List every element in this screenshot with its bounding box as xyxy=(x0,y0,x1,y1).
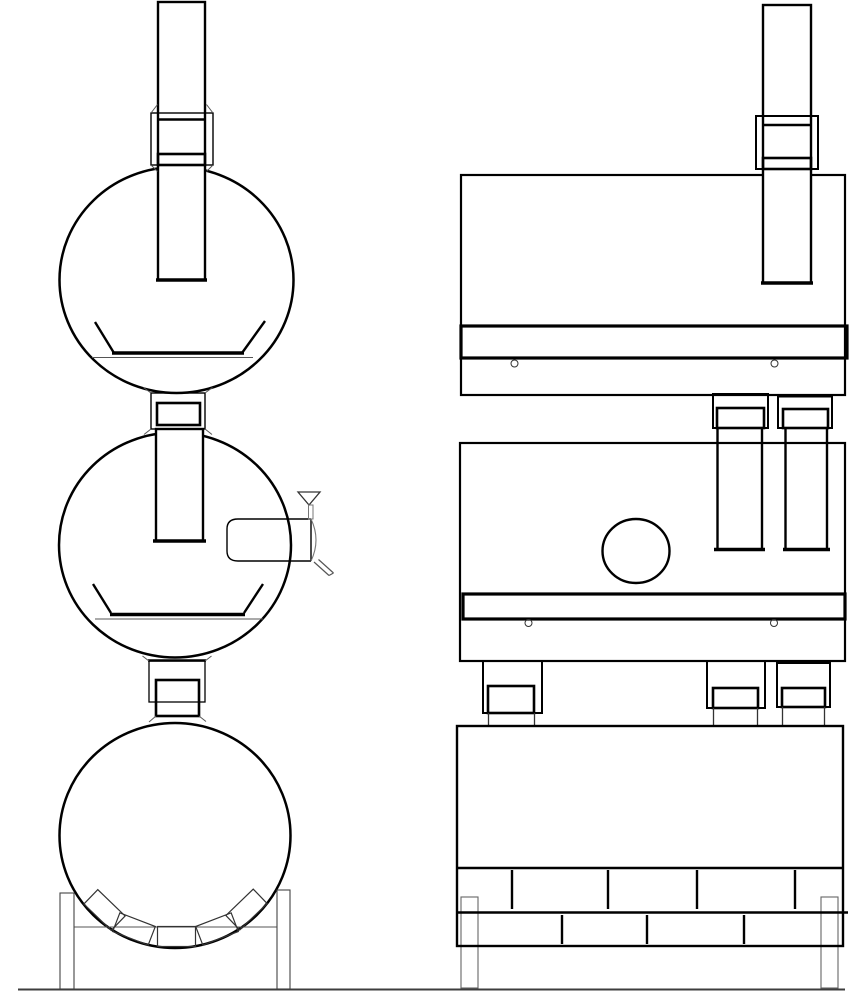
upper-connector-chamfer-br xyxy=(205,429,212,435)
tray-middle-right-slant xyxy=(244,584,263,613)
upper-connector-chamfer-bl xyxy=(144,429,151,435)
lower-leg-middle-collar-outer xyxy=(707,661,765,708)
drain-stub-end-cap xyxy=(329,573,334,576)
upper-casing-hole-left xyxy=(511,360,518,367)
saddle-pad-right-2 xyxy=(226,889,267,930)
top-pipe xyxy=(158,2,205,280)
base-post-left xyxy=(461,897,478,988)
top-flange-chamfer-tl xyxy=(151,105,158,114)
upper-connector-flange-inner xyxy=(157,403,200,425)
saddle-pad-left-2 xyxy=(84,890,125,931)
tray-top-right-slant xyxy=(242,321,265,353)
drain-stub-lower-line xyxy=(314,562,329,576)
upper-leg-right-collar-outer xyxy=(778,397,832,429)
middle-casing-band xyxy=(463,594,845,619)
tray-top-left-slant xyxy=(95,322,114,353)
saddle-pad-left-1 xyxy=(113,913,156,945)
side-elevation-view xyxy=(457,5,848,988)
front-elevation-view xyxy=(59,2,334,989)
lower-connector-chamfer-tr xyxy=(205,656,212,661)
upper-leg-left-collar-outer xyxy=(713,394,768,428)
upper-connector-flange-outer xyxy=(151,393,205,429)
lower-connector-neck xyxy=(149,661,205,702)
upper-casing-hole-right xyxy=(771,360,778,367)
saddle-pad-right-1 xyxy=(196,913,239,945)
lower-leg-right-collar-inner xyxy=(782,688,825,707)
drawing-canvas xyxy=(0,0,850,1008)
upper-connector-pipe xyxy=(156,429,203,541)
vent-funnel-stem xyxy=(309,505,314,519)
side-drum-body xyxy=(227,519,311,561)
stand-post-left xyxy=(60,893,74,989)
base-post-right xyxy=(821,897,838,988)
manhole-circle xyxy=(603,519,670,583)
upper-leg-left-collar-inner xyxy=(717,408,764,428)
tray-middle-left-slant xyxy=(93,584,111,613)
lower-connector-chamfer-bl xyxy=(149,716,156,722)
vent-funnel-cone xyxy=(298,492,320,505)
middle-casing xyxy=(460,443,845,661)
upper-casing-band xyxy=(461,326,847,358)
drain-stub-upper-line xyxy=(319,560,334,574)
lower-connector-chamfer-br xyxy=(199,716,206,722)
side-top-pipe xyxy=(763,5,811,283)
top-flange-chamfer-tr xyxy=(207,105,214,114)
upper-leg-right-collar-inner xyxy=(783,409,828,428)
side-drum-end-cap xyxy=(311,519,316,561)
lower-leg-middle-collar-inner xyxy=(713,688,758,708)
technical-drawing xyxy=(0,0,850,1008)
lower-leg-left-collar-inner xyxy=(488,686,534,713)
lower-leg-right-collar-outer xyxy=(777,663,830,707)
lower-connector-flange-inner xyxy=(156,680,199,716)
saddle-pad-center xyxy=(158,927,196,947)
lower-connector-chamfer-tl xyxy=(143,656,150,661)
stand-post-right xyxy=(277,890,290,989)
